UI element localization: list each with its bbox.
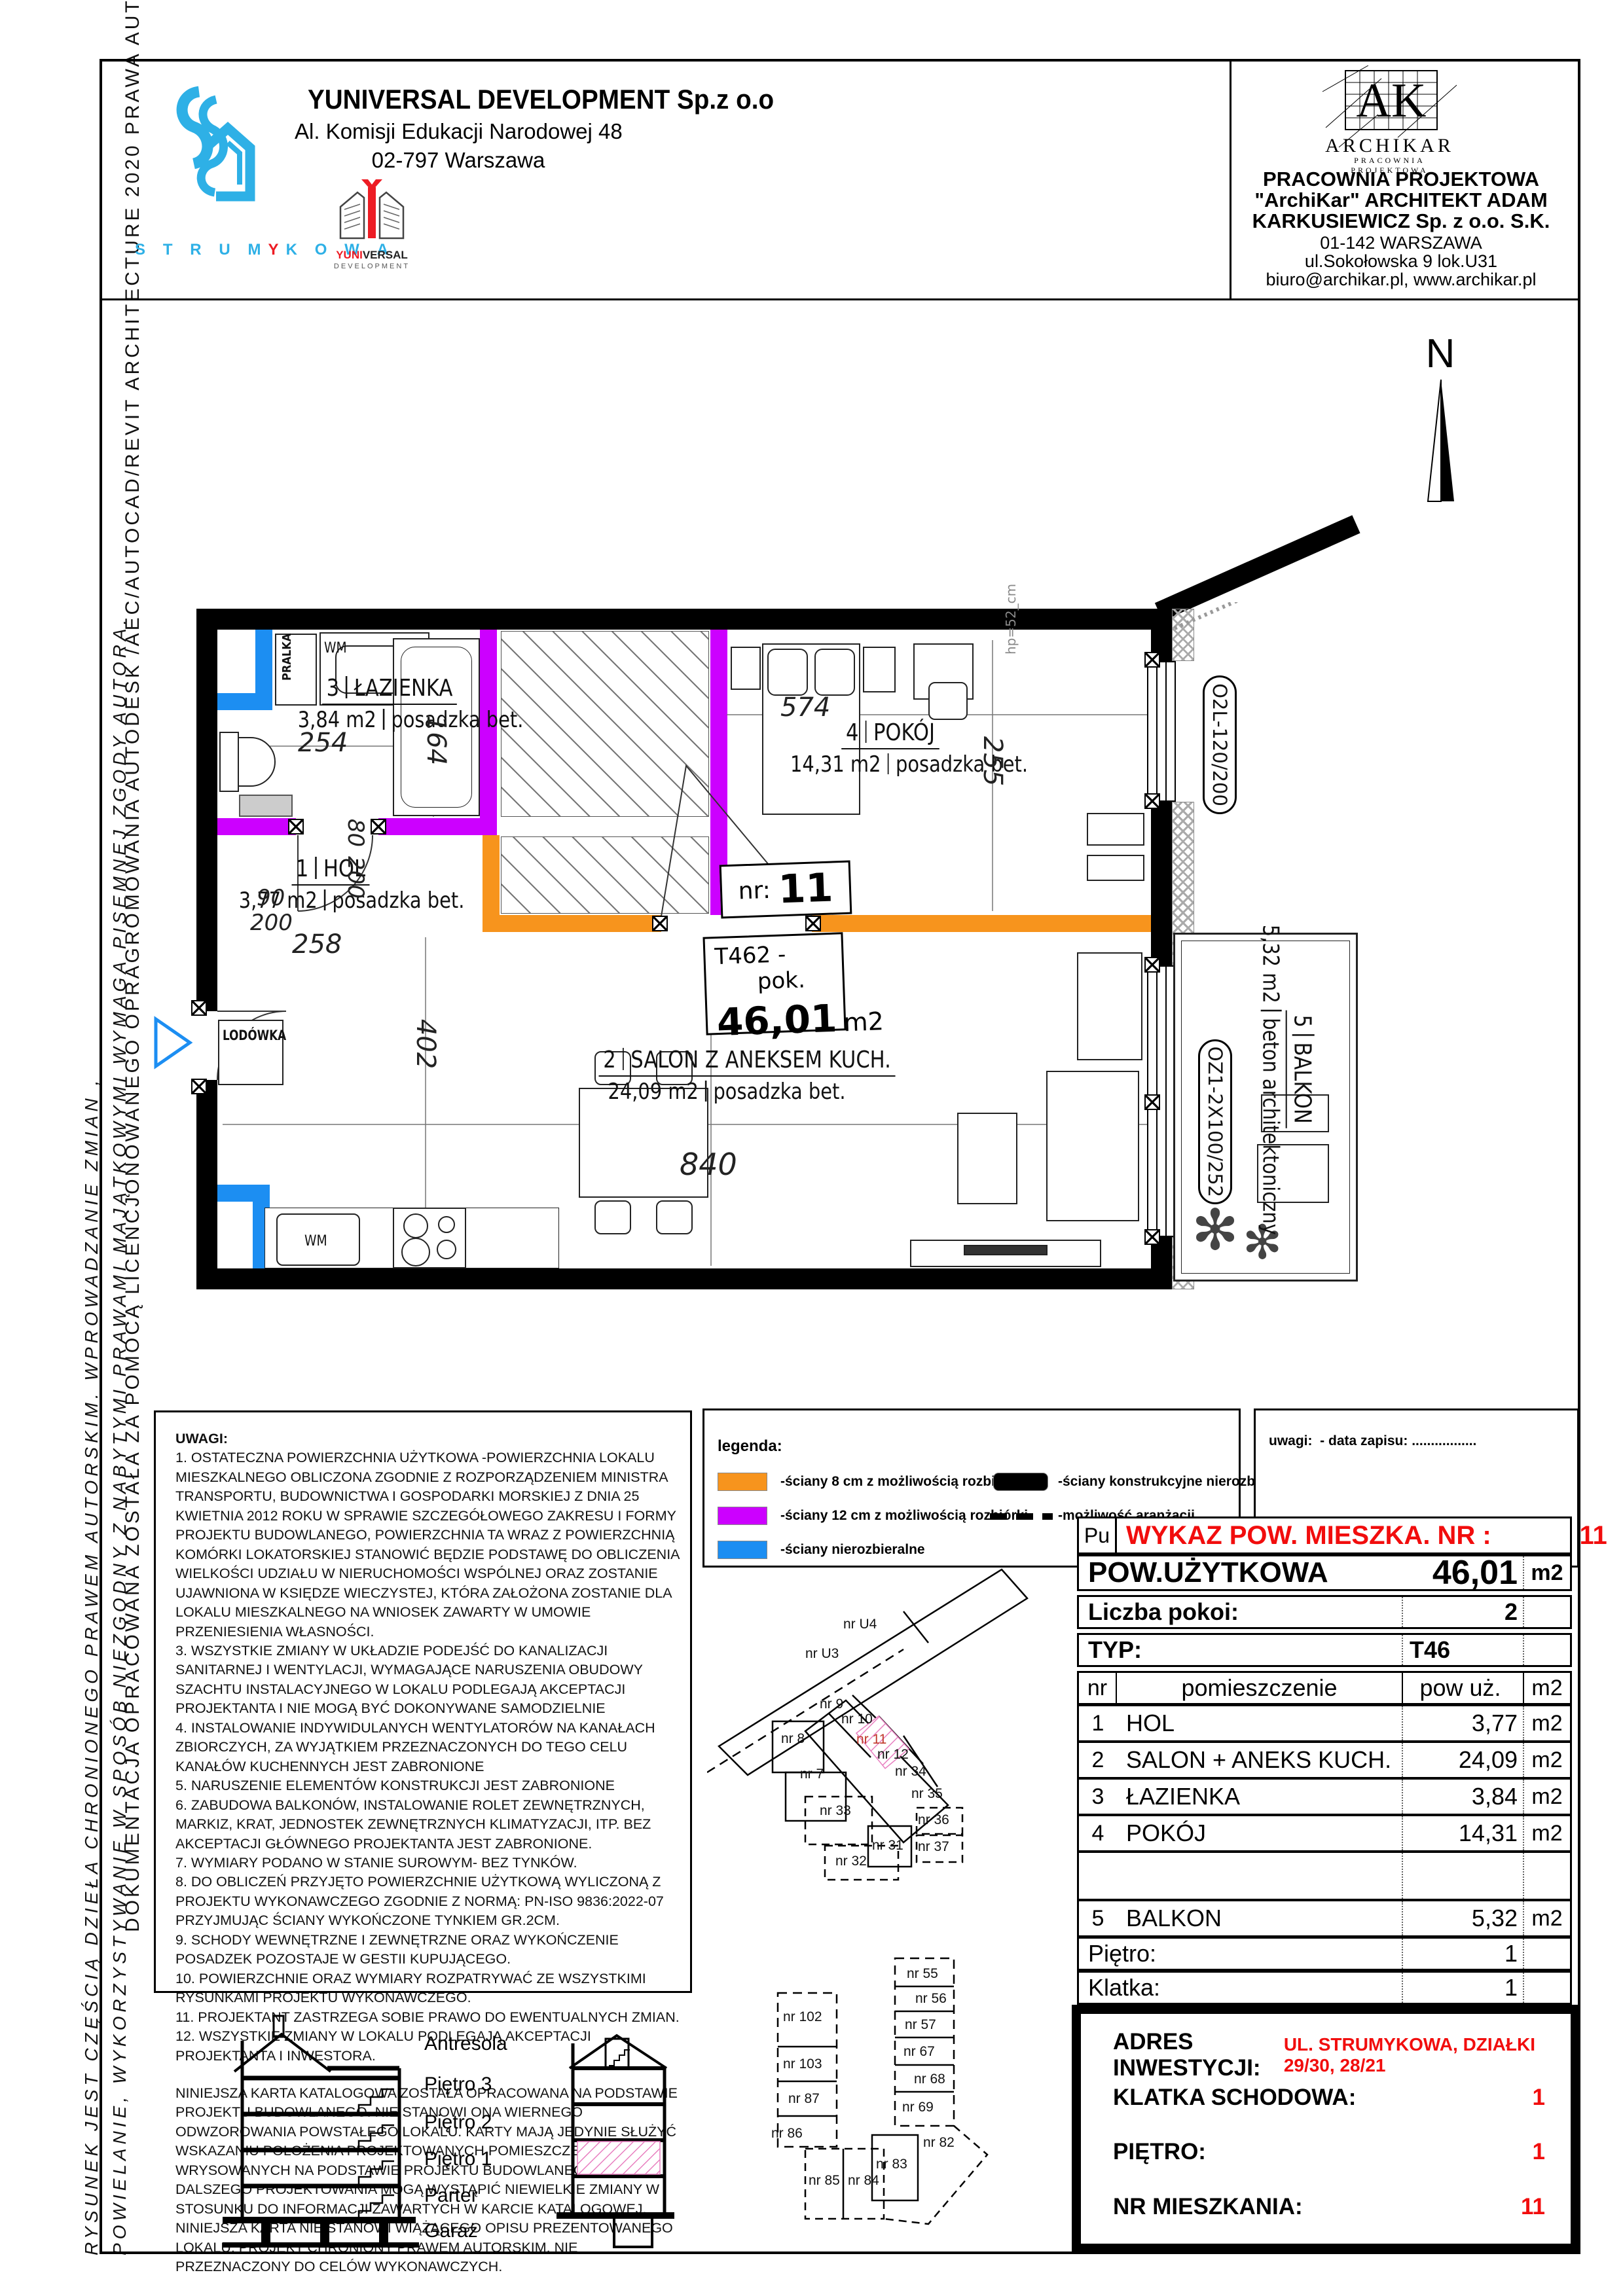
legend-swatch-blue: [718, 1541, 767, 1559]
developer-name: YUNIVERSAL DEVELOPMENT Sp.z o.o: [308, 84, 609, 115]
address-apartment-label: NR MIESZKANIA:: [1113, 2194, 1303, 2220]
rooms-label: Liczba pokoi:: [1079, 1598, 1402, 1626]
jamb-marker: [191, 1000, 207, 1016]
address-floor-value: 1: [1533, 2139, 1545, 2165]
catalog-card-page: DOKUMENTACJA OPRACOWANA ZOSTAŁA ZA POMOC…: [0, 0, 1623, 2296]
jamb-marker: [805, 916, 821, 931]
keyplan-drawing: [707, 1564, 1048, 2255]
table-row: 4 POKÓJ 14,31 m2: [1077, 1815, 1572, 1852]
address-value: UL. STRUMYKOWA, DZIAŁKI 29/30, 28/21: [1284, 2034, 1545, 2076]
keyplan-unit: nr 85: [809, 2173, 840, 2189]
keyplan-unit: nr 31: [872, 1838, 903, 1854]
keyplan-unit: nr 35: [911, 1786, 943, 1802]
cabinet: [1077, 952, 1142, 1060]
yuniversal-wordmark: YUNIVERSAL: [327, 249, 416, 262]
type-value: T46: [1402, 1635, 1523, 1665]
col-nr: nr: [1079, 1673, 1117, 1703]
archikar-logo-name: ARCHIKAR: [1319, 135, 1460, 157]
table-row-type: TYP: T46: [1077, 1633, 1572, 1667]
jamb-marker: [288, 819, 304, 834]
address-apartment-value: 11: [1521, 2194, 1545, 2220]
dim-salon-depth: 402: [410, 1019, 441, 1069]
studio-line-1: PRACOWNIA PROJEKTOWA: [1237, 169, 1565, 190]
rooms-value: 2: [1402, 1597, 1523, 1627]
floor-label: Piętro:: [1079, 1940, 1402, 1967]
section-label: Piętro 1: [424, 2148, 492, 2170]
legend-title: legenda:: [718, 1437, 782, 1456]
fridge-label: LODÓWKA: [223, 1028, 286, 1043]
area-unit: m2: [1523, 1556, 1570, 1589]
room-label-pokoj: 4POKÓJ 14,31 m2posadzka bet.: [790, 720, 991, 777]
note-item: 6. ZABUDOWA BALKONÓW, INSTALOWANIE ROLET…: [175, 1796, 680, 1854]
north-arrow-icon: [1423, 378, 1459, 506]
room-label-salon: 2SALON Z ANEKSEM KUCH. 24,09 m2posadzka …: [599, 1047, 855, 1104]
keyplan-unit: nr 34: [895, 1764, 926, 1780]
washer-label: PRALKA: [280, 634, 294, 681]
keyplan-unit: nr U4: [843, 1617, 877, 1632]
chair-4: [656, 1200, 693, 1234]
notes-title: UWAGI:: [175, 1429, 680, 1448]
dim-door-entry-h: 200: [250, 910, 293, 936]
svg-text:AK: AK: [1357, 74, 1427, 128]
window-tag-pokoj: O2L-120/200: [1203, 675, 1237, 814]
note-item: 9. SCHODY WEWNĘTRZNE I ZEWNĘTRZNE ORAZ W…: [175, 1931, 680, 1969]
keyplan-unit: nr 102: [783, 2009, 822, 2025]
strumykowa-logo: [160, 80, 258, 237]
keyplan-unit: nr 67: [903, 2044, 935, 2060]
keyplan-unit: nr 82: [923, 2135, 955, 2151]
legend-swatch-magenta: [718, 1507, 767, 1525]
table-row-floor: Piętro: 1: [1077, 1937, 1572, 1971]
keyplan-unit: nr 36: [918, 1812, 949, 1828]
keyplan-unit: nr 9: [820, 1696, 843, 1712]
keyplan-unit: nr 86: [771, 2126, 803, 2142]
bed-pillow-2: [814, 649, 855, 696]
table-row-rooms: Liczba pokoi: 2: [1077, 1595, 1572, 1629]
type-label: TYP:: [1079, 1636, 1402, 1664]
legend-label: -ściany 8 cm z możliwością rozbiórki: [780, 1474, 1020, 1490]
address-staircase-value: 1: [1533, 2085, 1545, 2111]
note-item: 10. POWIERZCHNIE ORAZ WYMIARY ROZPATRYWA…: [175, 1969, 680, 2008]
studio-address-3: biuro@archikar.pl, www.archikar.pl: [1237, 270, 1565, 291]
table-row: 3 ŁAZIENKA 3,84 m2: [1077, 1778, 1572, 1815]
studio-line-3: KARKUSIEWICZ Sp. z o.o. S.K.: [1237, 211, 1565, 232]
jamb-marker: [1144, 1229, 1160, 1245]
dim-door-entry-w: 90: [257, 885, 285, 911]
tv: [964, 1245, 1048, 1255]
nightstand-left: [731, 647, 761, 690]
col-room: pomieszczenie: [1117, 1674, 1402, 1702]
staircase-label: Klatka:: [1079, 1974, 1402, 2001]
keyplan-unit: nr 10: [841, 1712, 873, 1727]
notes-box: UWAGI: 1. OSTATECZNA POWIERZCHNIA UŻYTKO…: [154, 1410, 692, 1993]
table-row: 1 HOL 3,77 m2: [1077, 1705, 1572, 1742]
section-label: Piętro 2: [424, 2111, 492, 2134]
keyplan-unit: nr 56: [915, 1991, 947, 2007]
address-staircase-label: KLATKA SCHODOWA:: [1113, 2085, 1356, 2111]
balcony-plant-icon: ✻: [1192, 1198, 1239, 1263]
jamb-marker: [191, 1079, 207, 1094]
address-floor-label: PIĘTRO:: [1113, 2139, 1206, 2165]
keyplan: nr U4 nr U3 nr 9 nr 10 nr 11 nr 8 nr 12 …: [707, 1564, 1048, 2255]
address-label: ADRES INWESTYCJI:: [1113, 2029, 1284, 2081]
note-item: 1. OSTATECZNA POWIERZCHNIA UŻYTKOWA -POW…: [175, 1448, 680, 1641]
keyplan-unit: nr 32: [835, 1854, 867, 1869]
chair-3: [594, 1200, 631, 1234]
wm-label-kitchen: WM: [304, 1233, 327, 1249]
keyplan-unit: nr 68: [914, 2072, 945, 2087]
keyplan-unit: nr 33: [820, 1803, 851, 1819]
developer-address-1: Al. Komisji Edukacji Narodowej 48: [295, 119, 622, 144]
keyplan-unit: nr U3: [805, 1646, 839, 1662]
room-label-balkon: 5BALKON 5,32 m2beton architektoniczny: [1258, 925, 1315, 1214]
dim-bath-width: 254: [298, 728, 348, 758]
col-unit: m2: [1523, 1673, 1570, 1703]
jamb-marker: [652, 916, 668, 931]
jamb-marker: [1144, 793, 1160, 809]
table-title: WYKAZ POW. MIESZKA. NR :: [1117, 1521, 1491, 1551]
dim-door-bath: 80200: [342, 819, 369, 899]
table-header-row: nr pomieszczenie pow uż. m2: [1077, 1671, 1572, 1705]
table-pu: Pu: [1079, 1518, 1117, 1552]
desk-chair: [928, 682, 968, 720]
table-row-staircase: Klatka: 1: [1077, 1971, 1572, 2005]
legend-swatch-orange: [718, 1473, 767, 1491]
dim-pokoj-width: 574: [780, 692, 830, 723]
table-row: 5 BALKON 5,32 m2: [1077, 1900, 1572, 1937]
dim-bath-length: 164: [421, 715, 451, 765]
keyplan-unit-current: nr 11: [856, 1732, 886, 1748]
keyplan-unit: nr 55: [907, 1966, 938, 1982]
hob-burners: [393, 1208, 466, 1268]
remark-text: uwagi: - data zapisu: .................: [1269, 1433, 1476, 1449]
keyplan-unit: nr 8: [781, 1731, 805, 1747]
unit-type-box: T462 -pok. 46,01 m2: [702, 932, 846, 1035]
table-row-empty: [1077, 1852, 1572, 1900]
floor-value: 1: [1402, 1939, 1523, 1969]
keyplan-unit: nr 84: [848, 2173, 879, 2189]
keyplan-unit: nr 57: [905, 2017, 936, 2033]
table-row: 2 SALON + ANEKS KUCH. 24,09 m2: [1077, 1742, 1572, 1778]
keyplan-unit: nr 37: [918, 1839, 949, 1855]
yuniversal-logo: [335, 175, 409, 247]
jamb-marker: [1144, 957, 1160, 973]
note-item: 5. NARUSZENIE ELEMENTÓW KONSTRUKCJI JEST…: [175, 1776, 680, 1795]
bed-pillow-1: [767, 649, 808, 696]
jamb-marker: [371, 819, 386, 834]
area-value: 46,01: [1402, 1553, 1523, 1592]
keyplan-unit: nr 87: [788, 2091, 820, 2107]
coffee-table: [957, 1113, 1017, 1204]
strumykowa-wordmark: S T R U MYK O W A: [135, 241, 305, 259]
keyplan-unit: nr 69: [902, 2100, 934, 2115]
section-label: Garaż: [424, 2220, 478, 2242]
table-apartment-number: 11: [1491, 1521, 1613, 1551]
developer-address-2: 02-797 Warszawa: [295, 148, 622, 173]
legend-swatch-black: [993, 1473, 1048, 1491]
table-row-area: POW.UŻYTKOWA 46,01 m2: [1077, 1554, 1572, 1591]
dim-salon-width: 840: [680, 1147, 737, 1182]
nightstand-right: [863, 647, 896, 692]
dim-pokoj-depth: 255: [977, 736, 1008, 786]
col-area: pow uż.: [1402, 1673, 1523, 1703]
entrance-arrow-icon: [153, 1016, 194, 1069]
dim-hol-width: 258: [292, 929, 342, 960]
note-item: 7. WYMIARY PODANO W STANIE SUROWYM- BEZ …: [175, 1854, 680, 1873]
section-label: Parter: [424, 2185, 478, 2207]
unit-number-box: nr: 11: [720, 861, 852, 919]
staircase-value: 1: [1402, 1973, 1523, 2003]
dim-sill-height: hp=52_cm: [1003, 584, 1019, 655]
toilet-tank: [219, 732, 239, 792]
jamb-marker: [1144, 652, 1160, 668]
room-label-lazienka: 3ŁAZIENKA 3,84 m2posadzka bet.: [298, 675, 482, 732]
note-item: 8. DO OBLICZEŃ PRZYJĘTO POWIERZCHNIE UŻY…: [175, 1873, 680, 1930]
keyplan-unit: nr 12: [877, 1747, 909, 1763]
studio-line-2: "ArchiKar" ARCHITEKT ADAM: [1237, 190, 1565, 211]
keyplan-unit: nr 7: [800, 1767, 824, 1782]
keyplan-unit: nr 83: [876, 2157, 907, 2172]
radiator: [239, 795, 293, 817]
bench-window: [1087, 813, 1144, 846]
note-item: 4. INSTALOWANIE INDYWIDULANYCH WENTYLATO…: [175, 1719, 680, 1776]
wm-label-bath: WM: [324, 640, 347, 656]
yuniversal-wordmark-sub: DEVELOPMENT: [327, 262, 416, 270]
jamb-marker: [1144, 1094, 1160, 1110]
table-row-title: Pu WYKAZ POW. MIESZKA. NR : 11: [1077, 1516, 1572, 1554]
section-label: Antresola: [424, 2033, 507, 2055]
legend-label: -ściany nierozbieralne: [780, 1542, 925, 1558]
bench-window-2: [1087, 855, 1144, 881]
section-label: Piętro 3: [424, 2073, 492, 2096]
area-label: POW.UŻYTKOWA: [1079, 1556, 1402, 1589]
north-label: N: [1408, 331, 1473, 377]
sofa: [1046, 1071, 1139, 1221]
note-item: 3. WSZYSTKIE ZMIANY W UKŁADZIE PODEJŚĆ D…: [175, 1641, 680, 1719]
legend-dash-icon: [990, 1513, 1053, 1520]
window-tag-balcony: OZ1-2X100/252: [1198, 1039, 1232, 1204]
keyplan-unit: nr 103: [783, 2056, 822, 2072]
